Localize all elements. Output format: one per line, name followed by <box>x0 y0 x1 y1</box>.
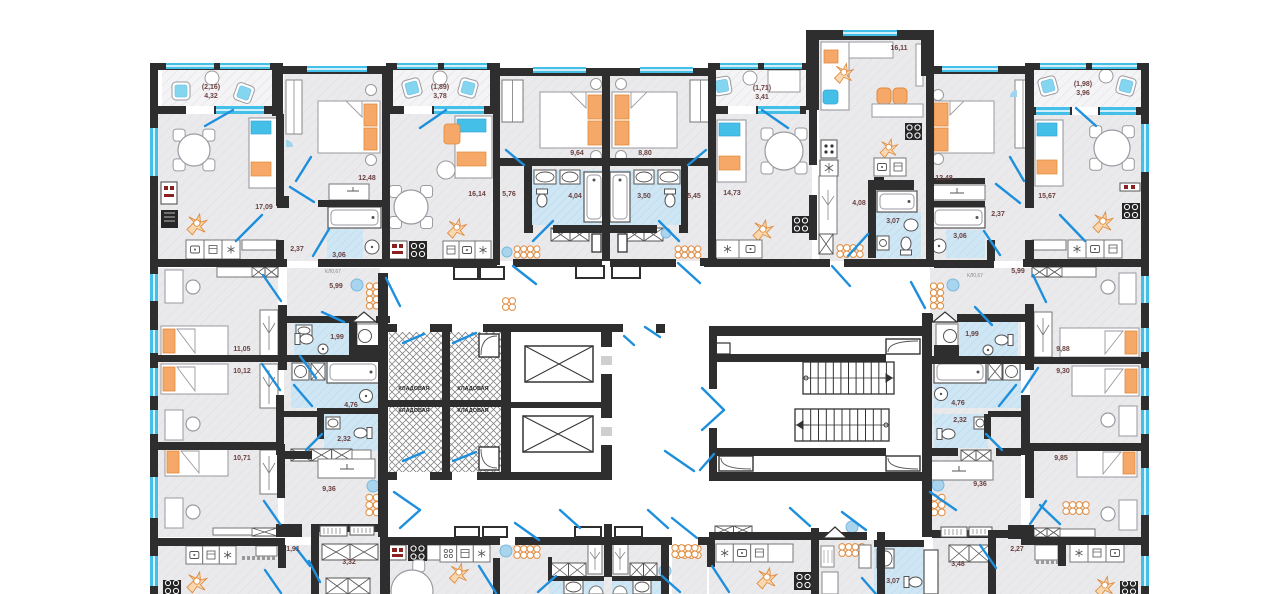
svg-text:12,48: 12,48 <box>935 175 953 182</box>
svg-text:5,76: 5,76 <box>502 191 516 198</box>
svg-text:15,67: 15,67 <box>1038 193 1056 200</box>
svg-text:КЛАДОВАЯ: КЛАДОВАЯ <box>457 386 488 392</box>
svg-text:16,14: 16,14 <box>468 191 486 198</box>
svg-text:3,06: 3,06 <box>332 252 346 259</box>
svg-text:3,41: 3,41 <box>755 94 769 101</box>
svg-text:12,48: 12,48 <box>358 175 376 182</box>
svg-text:КЛАДОВАЯ: КЛАДОВАЯ <box>457 408 488 414</box>
svg-text:3,32: 3,32 <box>342 559 356 566</box>
svg-text:17,09: 17,09 <box>255 204 273 211</box>
svg-text:1,99: 1,99 <box>330 334 344 341</box>
svg-text:1,91: 1,91 <box>286 546 300 553</box>
svg-text:10,12: 10,12 <box>233 368 251 375</box>
svg-text:4,04: 4,04 <box>568 193 582 200</box>
svg-text:5,99: 5,99 <box>329 283 343 290</box>
svg-text:1,99: 1,99 <box>965 331 979 338</box>
svg-text:16,11: 16,11 <box>890 45 907 52</box>
svg-text:(1,71): (1,71) <box>753 85 771 92</box>
svg-text:9,36: 9,36 <box>973 481 987 488</box>
svg-text:2,37: 2,37 <box>290 246 304 253</box>
svg-text:(2,16): (2,16) <box>202 84 220 91</box>
svg-text:3,50: 3,50 <box>637 193 651 200</box>
svg-text:14,73: 14,73 <box>723 190 741 197</box>
svg-text:5,45: 5,45 <box>687 193 701 200</box>
svg-text:4,76: 4,76 <box>344 402 358 409</box>
svg-text:3,78: 3,78 <box>433 93 447 100</box>
svg-text:3,07: 3,07 <box>886 218 900 225</box>
svg-text:КЛ0,67: КЛ0,67 <box>967 273 983 279</box>
svg-text:КЛАДОВАЯ: КЛАДОВАЯ <box>398 386 429 392</box>
svg-text:(1,89): (1,89) <box>431 84 449 91</box>
svg-text:9,85: 9,85 <box>1054 455 1068 462</box>
svg-text:2,27: 2,27 <box>1010 546 1024 553</box>
svg-text:2,37: 2,37 <box>991 211 1005 218</box>
svg-text:8,80: 8,80 <box>638 150 652 157</box>
svg-text:10,71: 10,71 <box>233 455 251 462</box>
svg-text:2,32: 2,32 <box>337 436 351 443</box>
svg-text:3,07: 3,07 <box>886 578 900 585</box>
svg-text:5,99: 5,99 <box>1011 268 1025 275</box>
svg-text:9,88: 9,88 <box>1056 346 1070 353</box>
svg-text:4,76: 4,76 <box>951 400 965 407</box>
svg-text:КЛАДОВАЯ: КЛАДОВАЯ <box>398 408 429 414</box>
svg-text:3,06: 3,06 <box>953 233 967 240</box>
svg-text:11,05: 11,05 <box>233 346 250 353</box>
svg-text:9,30: 9,30 <box>1056 368 1070 375</box>
svg-text:4,08: 4,08 <box>852 200 866 207</box>
svg-text:КЛ0,67: КЛ0,67 <box>325 269 341 275</box>
svg-text:3,48: 3,48 <box>951 561 965 568</box>
svg-text:4,32: 4,32 <box>204 93 218 100</box>
svg-text:9,64: 9,64 <box>570 150 584 157</box>
svg-text:2,32: 2,32 <box>953 417 967 424</box>
svg-text:3,96: 3,96 <box>1076 90 1090 97</box>
svg-text:(1,98): (1,98) <box>1074 81 1092 88</box>
svg-text:9,36: 9,36 <box>322 486 336 493</box>
